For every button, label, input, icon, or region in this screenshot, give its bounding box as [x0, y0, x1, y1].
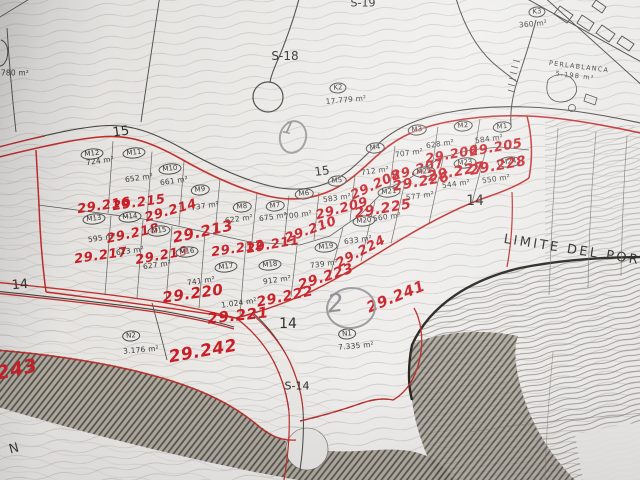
plot-id-M19: M19: [314, 240, 338, 253]
plot-id-M11: M11: [122, 146, 146, 159]
plot-id-M17: M17: [214, 260, 238, 273]
plot-area-M12: 724 m²: [86, 155, 115, 166]
porn-boundary-label: LIMITE DEL PORN: [503, 233, 640, 269]
road-number-label: S-19: [351, 0, 376, 9]
road-number-label: S-14: [285, 381, 310, 392]
pencil-circled-number: 1: [275, 117, 310, 157]
plot-id-N1: N1: [338, 328, 356, 340]
plot-area-N2: 3.176 m²: [123, 345, 159, 356]
plot-area-M3: 707 m²: [395, 147, 424, 158]
plot-id-M15: M15: [147, 224, 171, 237]
plot-id-N2: N2: [122, 330, 140, 342]
plot-id-M16: M16: [175, 245, 199, 258]
plot-area-M11: 652 m²: [125, 172, 154, 183]
plot-area-M10: 661 m²: [160, 175, 189, 186]
plot-id-K3: K3: [528, 6, 546, 18]
map-labels-layer: M1584 m²29.205M2628 m²29.206M3707 m²29.2…: [0, 0, 640, 480]
standalone-area-label: 780 m²: [1, 69, 29, 77]
plot-id-M13: M13: [82, 212, 106, 225]
cadastral-map-photo: M1584 m²29.205M2628 m²29.206M3707 m²29.2…: [0, 0, 640, 480]
plot-id-M4: M4: [365, 142, 385, 155]
plot-id-M3: M3: [407, 124, 427, 137]
plot-id-M6: M6: [294, 188, 314, 201]
road-number-label: 14: [279, 317, 297, 331]
plot-id-M2: M2: [453, 120, 473, 133]
plot-id-M14: M14: [118, 210, 142, 223]
plot-area-M6: 700 m²: [284, 209, 313, 220]
handwritten-parcel-number: 29.242: [167, 338, 238, 367]
plot-id-M10: M10: [158, 162, 182, 175]
plot-id-M9: M9: [190, 184, 210, 197]
plot-area-N1: 7.335 m²: [338, 341, 374, 352]
handwritten-parcel-number: 243: [0, 356, 39, 383]
plot-id-K2: K2: [329, 82, 347, 94]
edge-partial-letter: N: [8, 441, 21, 456]
plot-id-M8: M8: [232, 201, 252, 214]
road-number-label: S-18: [271, 50, 298, 62]
plot-id-M18: M18: [258, 258, 282, 271]
parcel-number-M9: 29.213: [171, 218, 234, 245]
road-number-label: 15: [314, 164, 331, 178]
road-number-label: 15: [112, 124, 130, 139]
parcel-number-M16: 29.220: [162, 282, 225, 305]
plot-area-M18: 912 m²: [263, 274, 292, 285]
parcel-number-M8: 29.212: [210, 239, 265, 259]
plot-area-K2: 17.779 m²: [325, 94, 366, 105]
plot-area-K3: 360 m²: [519, 19, 548, 29]
road-number-label: 14: [11, 278, 29, 292]
road-number-label: 14: [466, 194, 484, 208]
plot-area-M7: 675 m²: [259, 211, 288, 222]
pencil-circled-number: 2: [324, 285, 378, 332]
